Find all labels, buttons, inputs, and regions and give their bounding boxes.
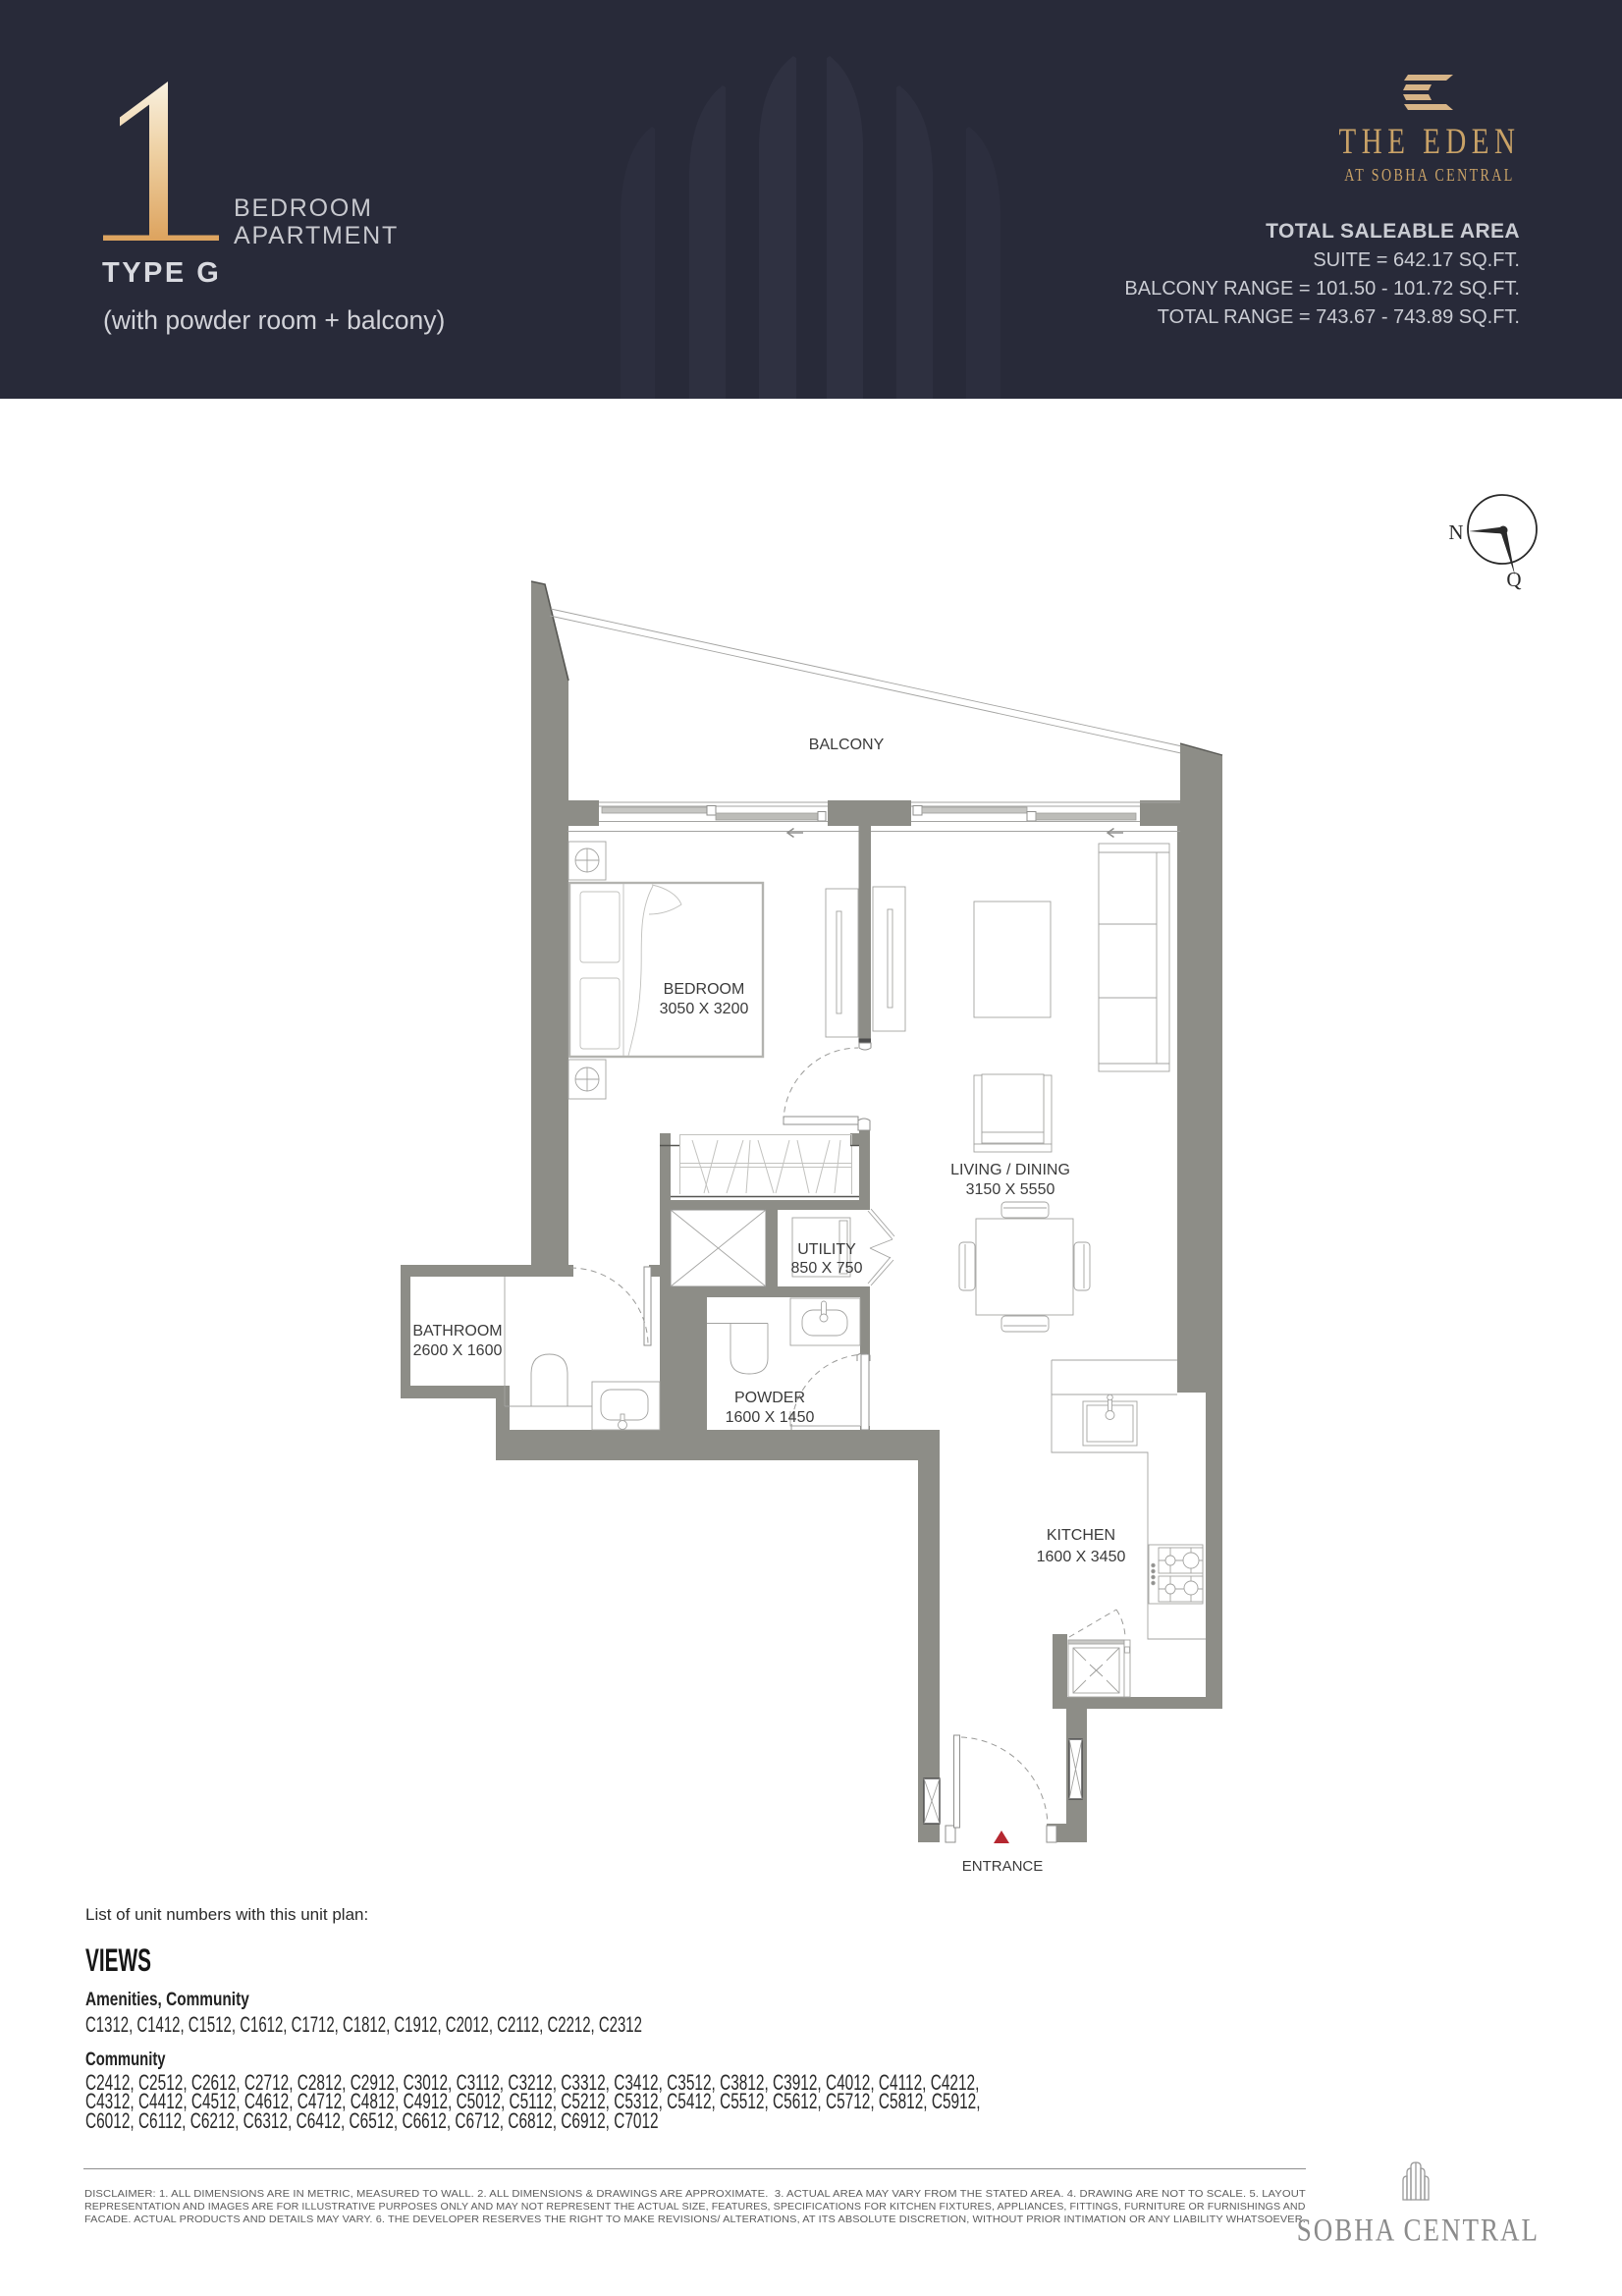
svg-text:BALCONY: BALCONY [809, 737, 885, 753]
svg-text:ENTRANCE: ENTRANCE [962, 1858, 1044, 1875]
svg-text:N: N [1448, 520, 1463, 544]
svg-text:LIVING / DINING: LIVING / DINING [950, 1162, 1070, 1178]
svg-text:Q: Q [1506, 568, 1521, 591]
svg-text:KITCHEN: KITCHEN [1047, 1527, 1115, 1544]
svg-text:850 X 750: 850 X 750 [791, 1260, 863, 1277]
svg-text:1600 X 3450: 1600 X 3450 [1037, 1549, 1126, 1565]
svg-text:3050 X 3200: 3050 X 3200 [660, 1001, 749, 1017]
svg-text:1600 X 1450: 1600 X 1450 [726, 1409, 815, 1426]
svg-text:BATHROOM: BATHROOM [412, 1323, 502, 1339]
svg-text:2600 X 1600: 2600 X 1600 [413, 1342, 503, 1359]
svg-text:POWDER: POWDER [734, 1390, 805, 1406]
svg-text:BEDROOM: BEDROOM [664, 981, 745, 998]
svg-text:3150 X 5550: 3150 X 5550 [966, 1181, 1055, 1198]
svg-text:UTILITY: UTILITY [797, 1241, 856, 1258]
